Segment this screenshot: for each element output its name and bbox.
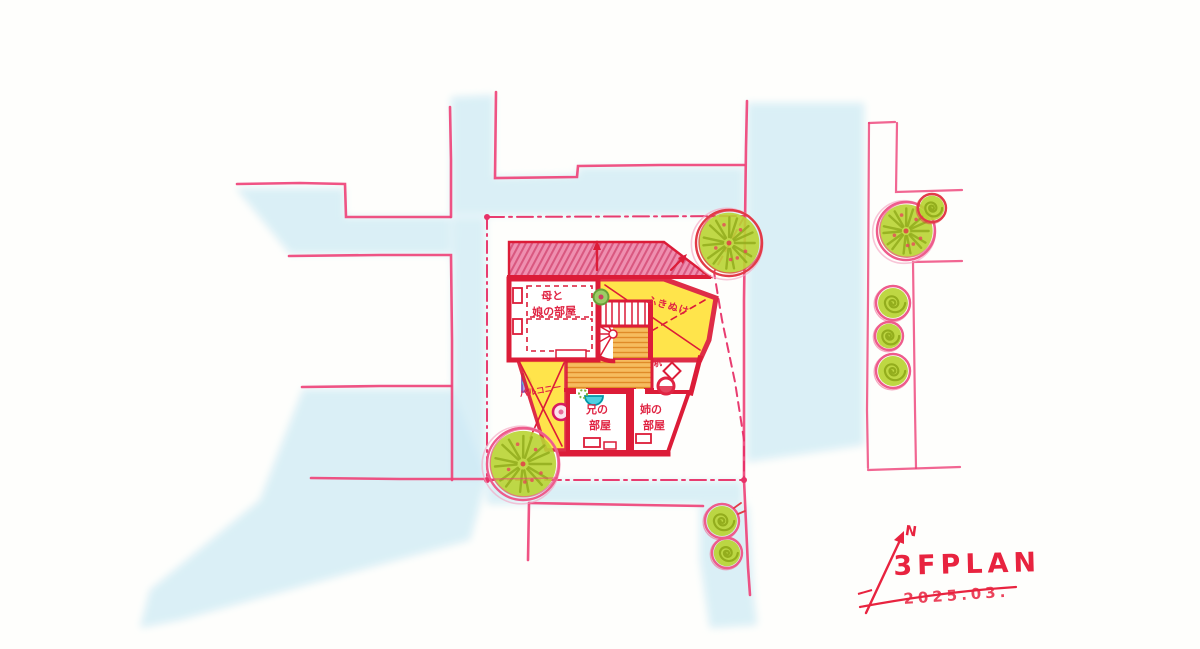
desk-outline <box>584 438 600 447</box>
street-line <box>868 467 960 470</box>
label-desk: 机 <box>653 359 662 368</box>
street-line <box>450 107 451 217</box>
tree-icon <box>482 426 560 504</box>
stool-center <box>559 410 564 415</box>
door-gap <box>634 389 645 395</box>
tree-icon <box>873 322 903 352</box>
label-sister-room-line1: 姉の <box>640 404 662 415</box>
label-mother-daughter-room-line2: 娘の部屋 <box>532 305 576 318</box>
tree-icon <box>703 504 739 540</box>
shelf <box>556 350 586 358</box>
tree-icon <box>874 354 910 390</box>
desk-outline <box>636 434 651 443</box>
label-mother-daughter-room-line1: 母と <box>541 290 563 302</box>
plant-center <box>599 295 604 300</box>
tree-icon <box>691 208 762 279</box>
tree-icon <box>710 538 742 570</box>
label-sister-room-line2: 部屋 <box>643 420 665 431</box>
label-brother-room-line2: 部屋 <box>589 420 611 431</box>
street-line <box>867 123 869 468</box>
north-label: N <box>904 524 918 539</box>
building <box>509 240 716 454</box>
alcove <box>658 358 700 394</box>
street-line <box>495 92 744 178</box>
label-brother-room-line1: 兄の <box>586 404 608 415</box>
street-line <box>869 122 895 123</box>
street-line <box>913 262 916 468</box>
tree-icon <box>916 194 946 224</box>
boundary-corner-dot <box>741 477 747 483</box>
road-southwest-fan <box>140 389 487 628</box>
boundary-over-tree <box>490 478 558 479</box>
street-line <box>311 478 484 479</box>
street-line <box>896 123 962 192</box>
floor-plan-sketch: 母と 娘の部屋 ふきぬけ バルコニー 兄の 部屋 姉の 部屋 机 N 3FPLA… <box>0 0 1200 649</box>
road-west-horizontal <box>236 188 451 254</box>
closet <box>513 288 522 303</box>
corridor-floor <box>566 360 652 390</box>
plan-title: 3FPLAN <box>893 549 1041 580</box>
tree-icon <box>874 286 910 322</box>
street-line <box>302 386 451 387</box>
desk-outline <box>604 442 616 449</box>
closet <box>513 319 522 334</box>
road-east-vertical <box>747 103 864 462</box>
street-line <box>528 503 529 560</box>
street-line <box>913 261 962 262</box>
boundary-corner-dot <box>484 214 490 220</box>
road-washes <box>140 95 864 628</box>
